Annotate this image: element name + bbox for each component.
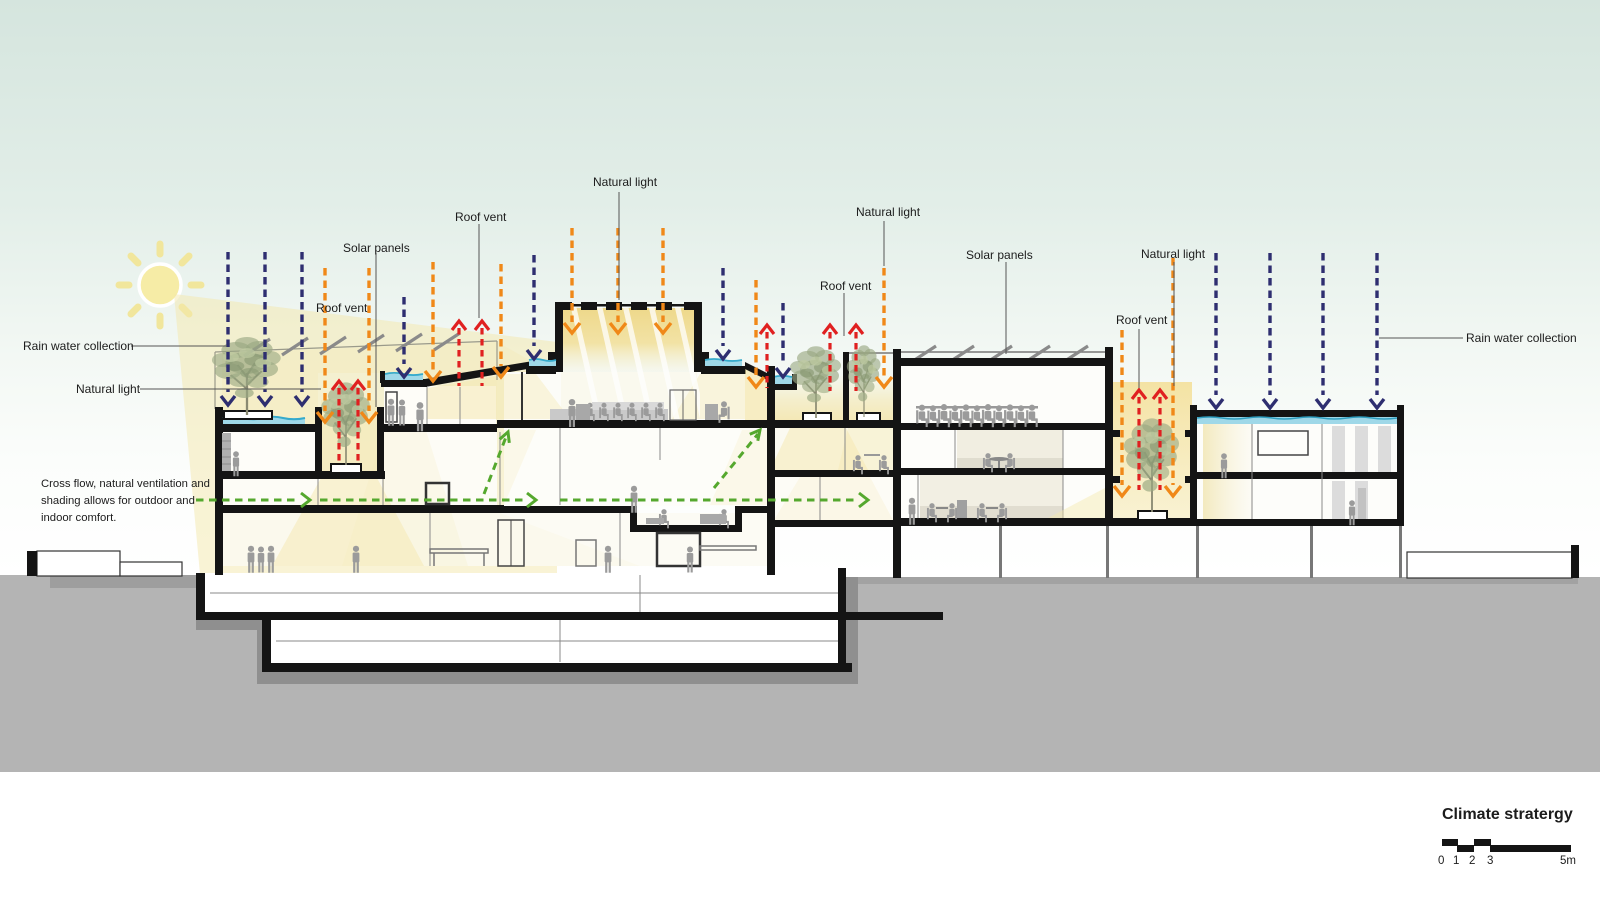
svg-text:Climate stratergy: Climate stratergy [1442, 806, 1573, 823]
svg-text:Solar panels: Solar panels [966, 248, 1033, 262]
svg-text:Roof vent: Roof vent [1116, 313, 1168, 327]
svg-text:Natural light: Natural light [76, 382, 141, 396]
svg-text:Solar panels: Solar panels [343, 241, 410, 255]
svg-text:2: 2 [1469, 855, 1475, 867]
svg-text:Natural light: Natural light [856, 205, 921, 219]
svg-text:Natural light: Natural light [1141, 247, 1206, 261]
svg-text:indoor comfort.: indoor comfort. [41, 512, 116, 524]
svg-text:3: 3 [1487, 855, 1493, 867]
svg-text:0: 0 [1438, 855, 1444, 867]
svg-text:Roof vent: Roof vent [820, 279, 872, 293]
svg-text:Rain water collection: Rain water collection [1466, 331, 1577, 345]
svg-text:shading allows for outdoor and: shading allows for outdoor and [41, 495, 195, 507]
svg-text:5m: 5m [1560, 855, 1576, 867]
svg-text:Natural light: Natural light [593, 175, 658, 189]
svg-text:Cross flow, natural ventilatio: Cross flow, natural ventilation and [41, 478, 210, 490]
svg-text:Roof vent: Roof vent [455, 210, 507, 224]
svg-text:1: 1 [1453, 855, 1459, 867]
svg-text:Roof vent: Roof vent [316, 301, 368, 315]
svg-text:Rain water collection: Rain water collection [23, 339, 134, 353]
